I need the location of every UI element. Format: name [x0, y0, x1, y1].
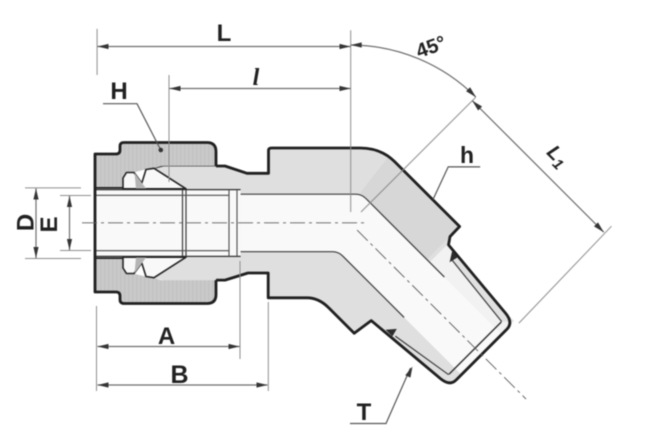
svg-text:E: E: [36, 216, 63, 232]
svg-text:B: B: [170, 361, 188, 389]
svg-text:L: L: [217, 20, 232, 47]
svg-text:45°: 45°: [413, 32, 449, 63]
svg-text:L1: L1: [540, 141, 572, 173]
svg-text:l: l: [253, 65, 260, 91]
svg-text:A: A: [158, 323, 175, 350]
svg-text:h: h: [460, 142, 474, 168]
svg-text:T: T: [357, 399, 372, 426]
svg-text:H: H: [110, 78, 127, 105]
